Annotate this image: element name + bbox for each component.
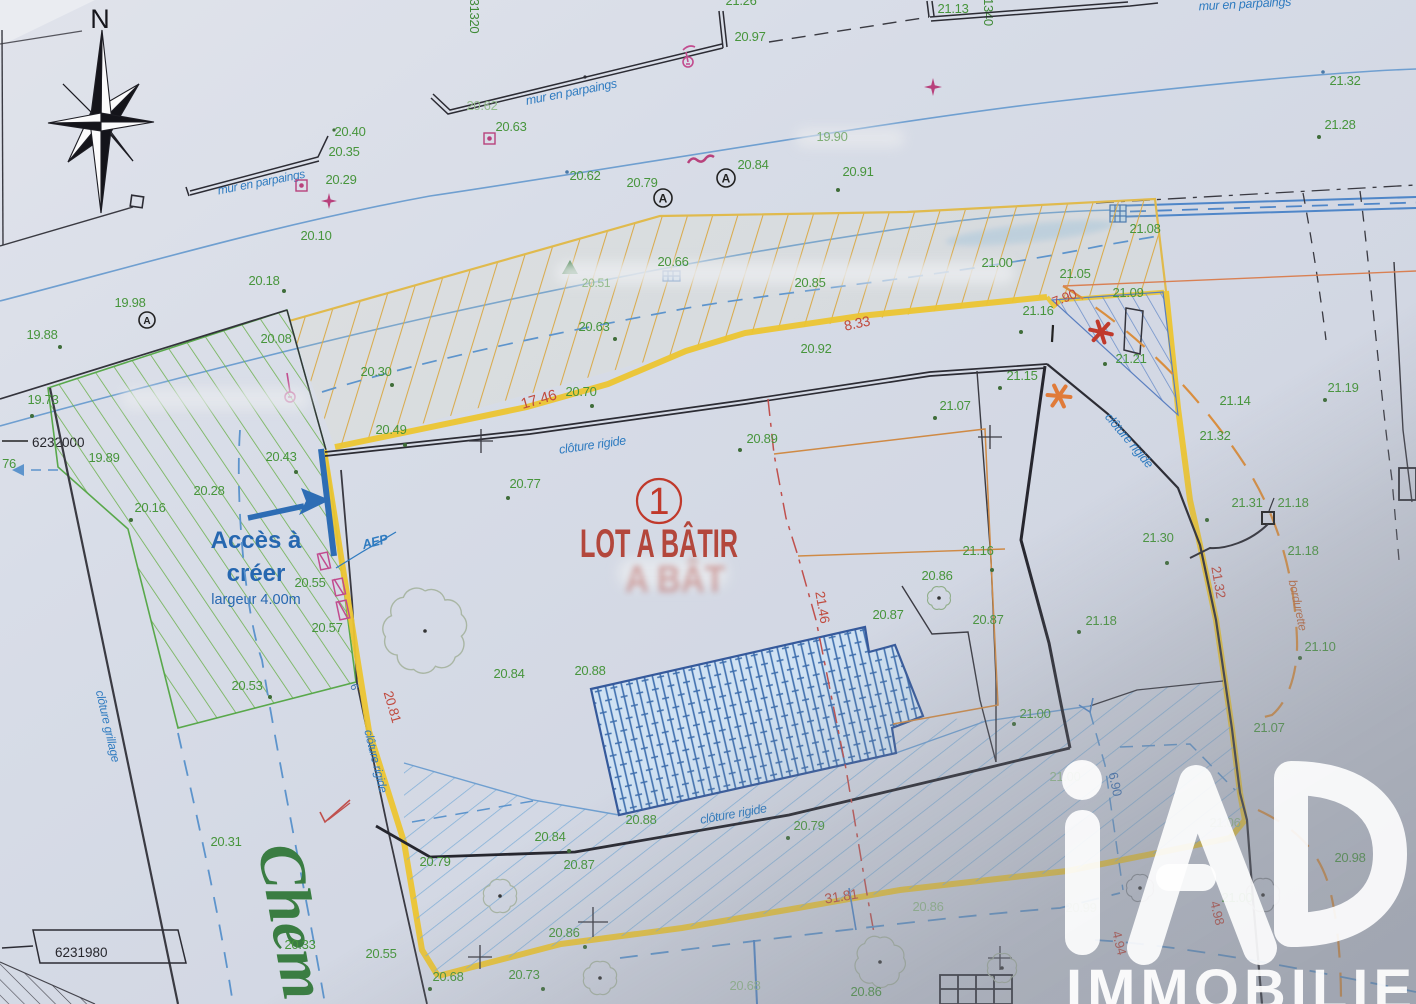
svg-text:IMMOBILIER: IMMOBILIER <box>1066 958 1416 1004</box>
